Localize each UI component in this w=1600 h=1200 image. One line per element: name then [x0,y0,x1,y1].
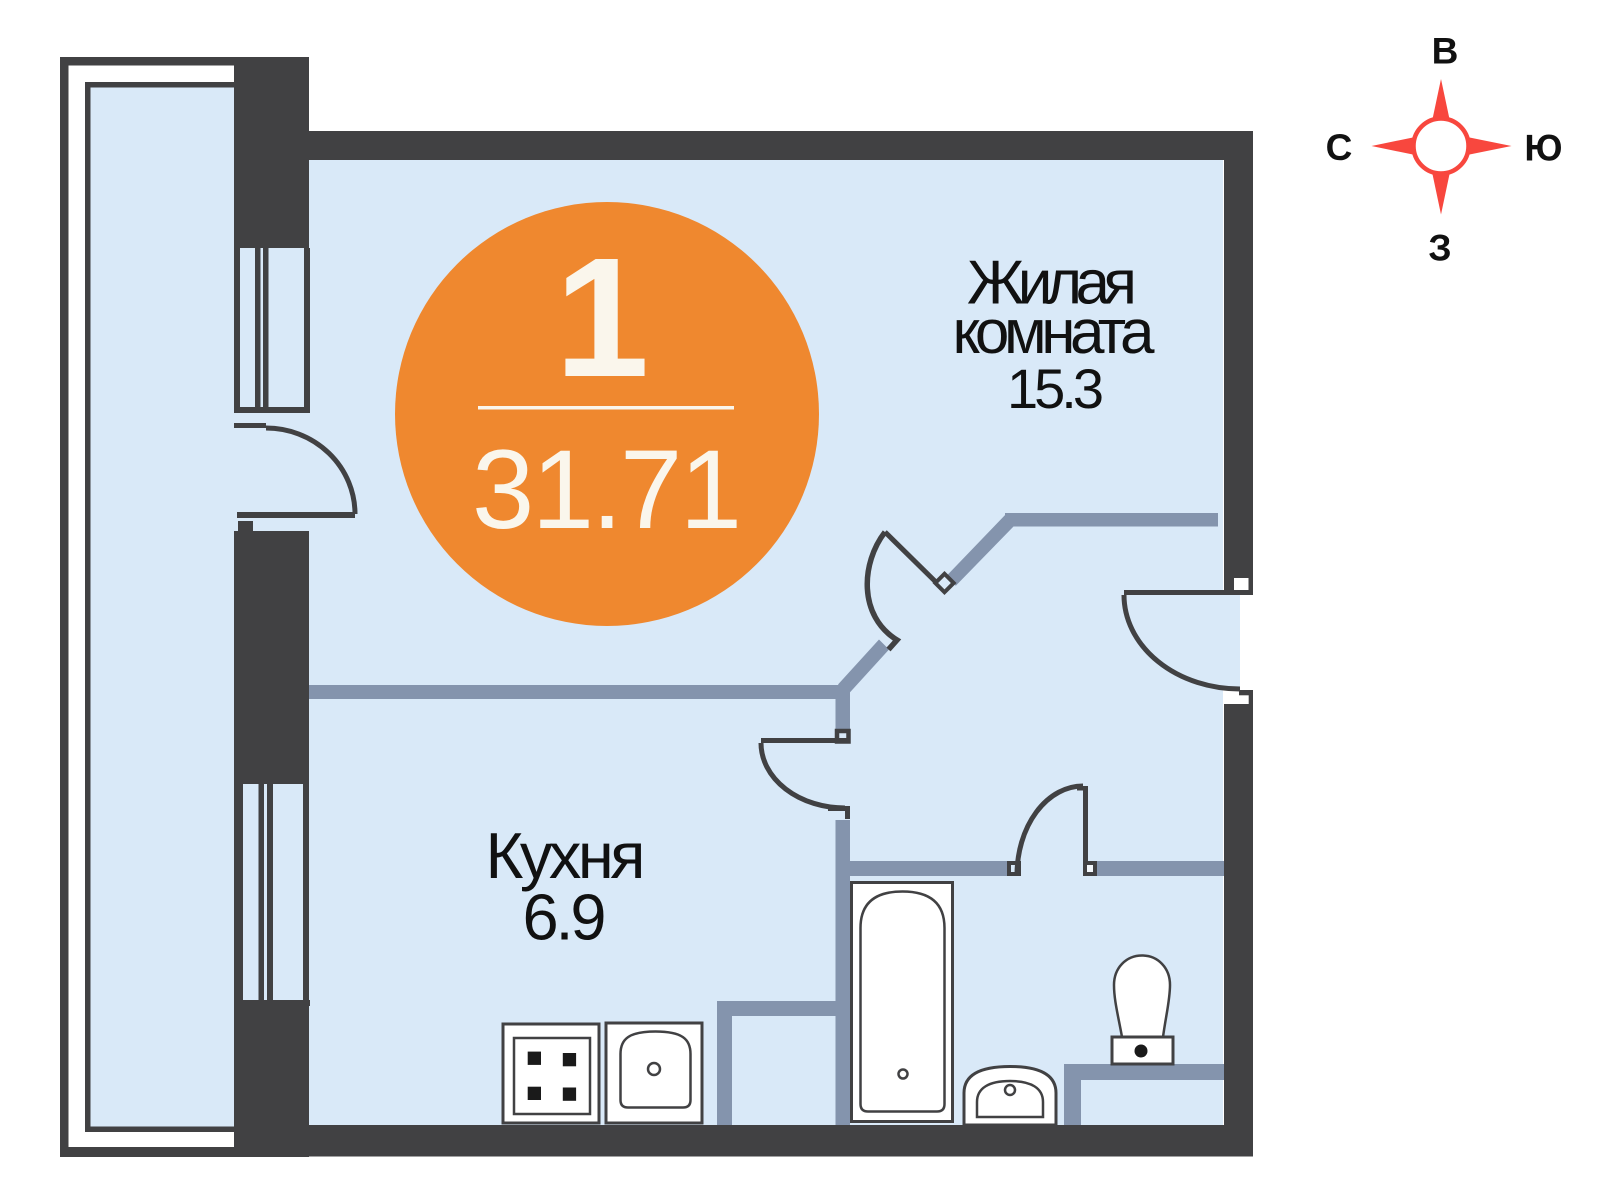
svg-text:1: 1 [555,223,650,413]
svg-text:Ю: Ю [1524,128,1562,169]
svg-text:З: З [1428,228,1451,269]
svg-text:15.3: 15.3 [1007,357,1104,420]
svg-text:6.9: 6.9 [523,881,607,954]
svg-text:В: В [1432,31,1459,72]
svg-text:31.71: 31.71 [472,427,742,552]
svg-text:С: С [1326,127,1353,168]
